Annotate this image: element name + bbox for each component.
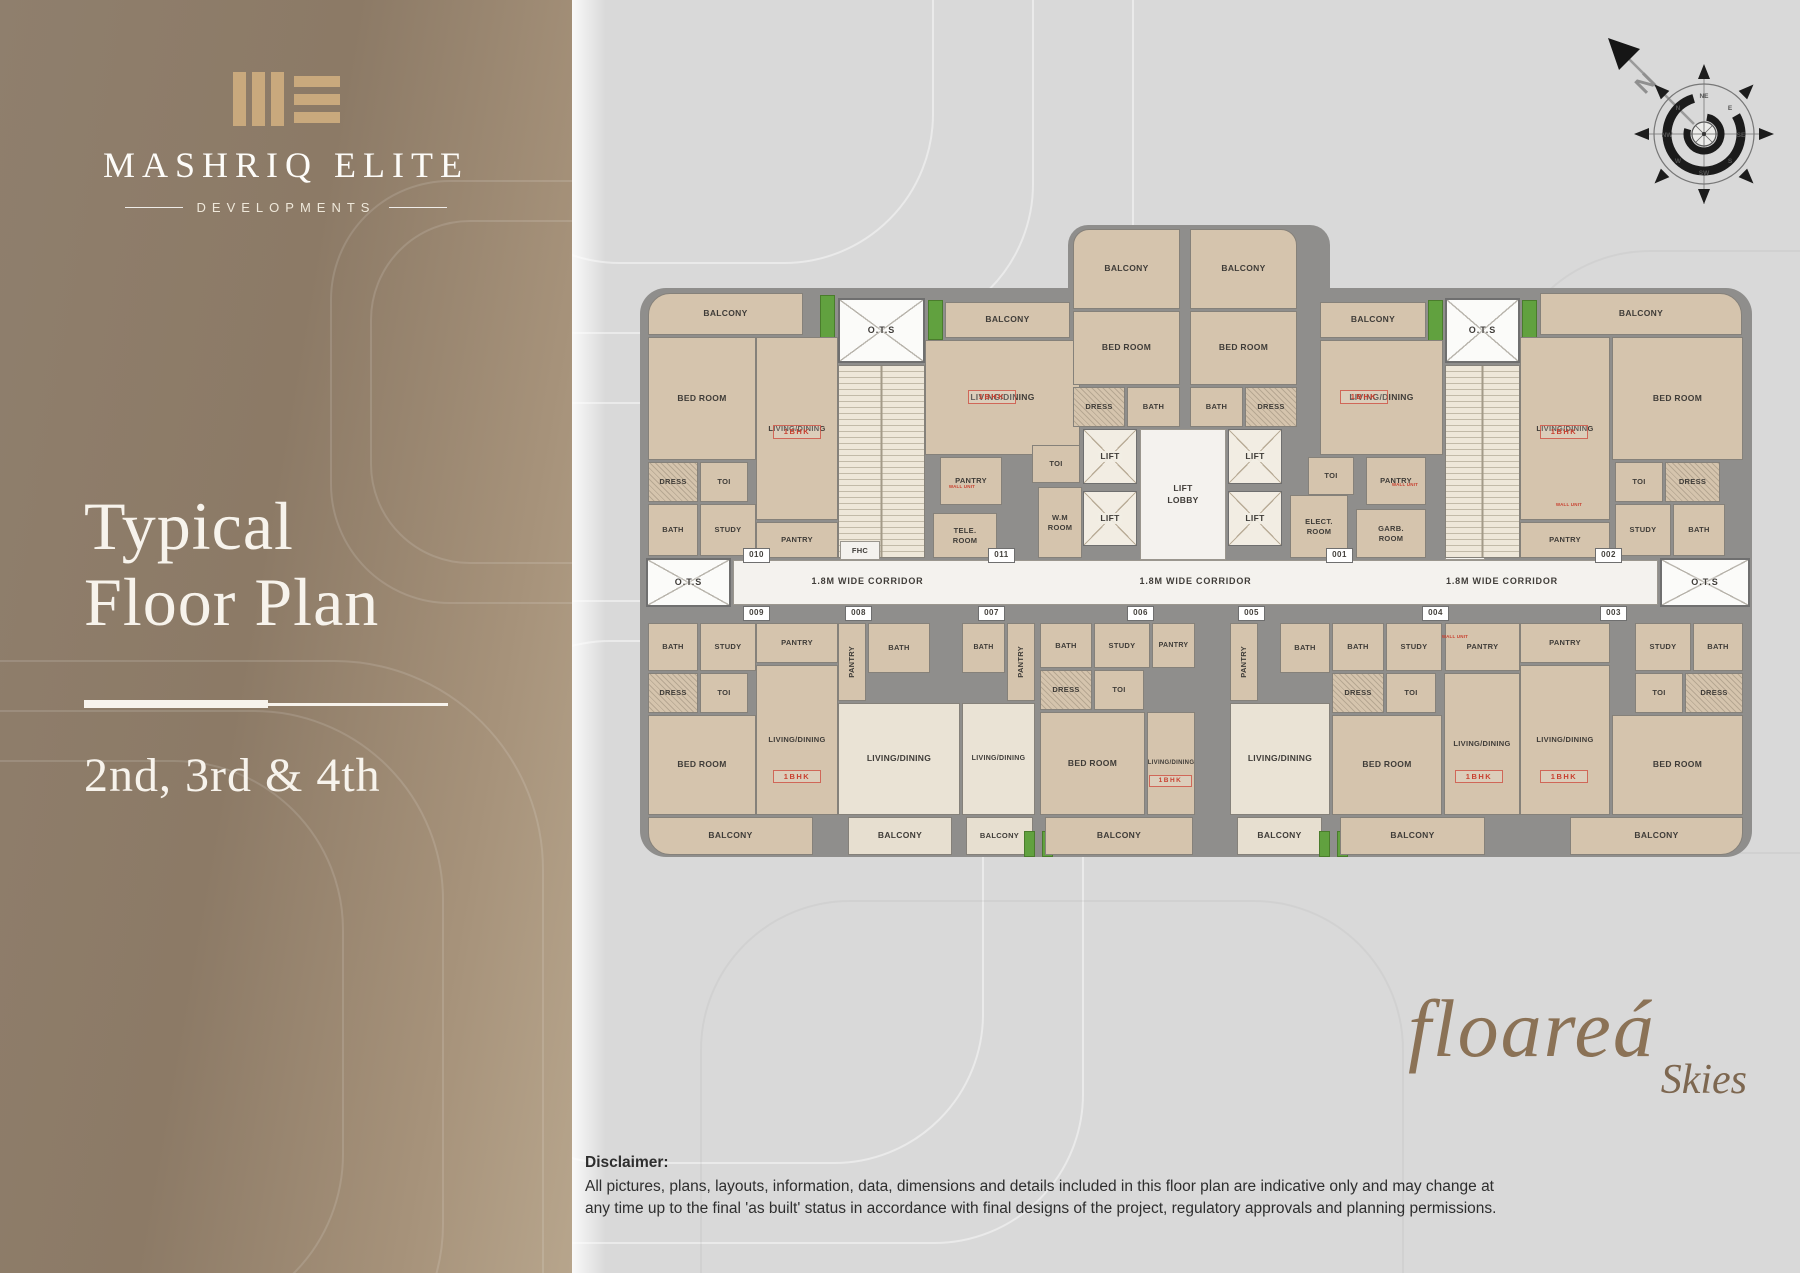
redtag-001: 1BHK — [1340, 390, 1388, 404]
logo-horizontal-bars — [294, 76, 340, 123]
dress-core-right: DRESS — [1245, 387, 1297, 427]
wall-unit-tag-2: WALL UNIT — [1388, 481, 1422, 489]
sidebar-arc — [0, 760, 344, 1273]
compass-north-label: N — [1630, 68, 1661, 99]
unit-tag-009: 009 — [743, 606, 770, 621]
sidebar-edge-highlight — [572, 0, 606, 1273]
bath-002: BATH — [1673, 504, 1725, 556]
ots-top-right: O.T.S — [1445, 298, 1520, 363]
corridor-label-center: 1.8M WIDE CORRIDOR — [1108, 574, 1283, 590]
corridor-label-right: 1.8M WIDE CORRIDOR — [1412, 574, 1592, 590]
redtag-009: 1BHK — [773, 770, 821, 783]
bath-009: BATH — [648, 623, 698, 671]
pantry-003: PANTRY — [1520, 623, 1610, 663]
balcony-009: BALCONY — [648, 817, 813, 855]
unit-tag-011: 011 — [988, 548, 1015, 563]
bedroom-004: BED ROOM — [1332, 715, 1442, 815]
ots-corridor-left: O.T.S — [646, 558, 731, 607]
bath-core-right: BATH — [1190, 387, 1243, 427]
wall-unit-tag-4: WALL UNIT — [1552, 501, 1586, 509]
dress-003: DRESS — [1685, 673, 1743, 713]
logo-vertical-bars — [233, 72, 284, 126]
planter-7 — [1319, 831, 1330, 857]
pantry-005: PANTRY — [1230, 623, 1258, 701]
toi-002: TOI — [1615, 462, 1663, 502]
toi-003: TOI — [1635, 673, 1683, 713]
ots-top-left: O.T.S — [838, 298, 925, 363]
lift-1: LIFT — [1083, 429, 1137, 484]
redtag-006: 1BHK — [1149, 775, 1192, 787]
dress-004: DRESS — [1332, 673, 1384, 713]
brand-block: MASHRIQ ELITE DEVELOPMENTS — [0, 72, 572, 215]
unit-tag-008: 008 — [845, 606, 872, 621]
title-divider — [84, 700, 448, 708]
dress-009: DRESS — [648, 673, 698, 713]
pantry-006: PANTRY — [1152, 623, 1195, 668]
toi-009: TOI — [700, 673, 748, 713]
brand-name: MASHRIQ ELITE — [0, 144, 572, 186]
redtag-002: 1BHK — [1540, 425, 1588, 439]
toi-006: TOI — [1094, 670, 1144, 710]
balcony-007: BALCONY — [966, 817, 1033, 855]
pantry-011: PANTRY — [940, 457, 1002, 505]
balcony-001: BALCONY — [1320, 302, 1426, 338]
redtag-004: 1BHK — [1455, 770, 1503, 783]
balcony-003: BALCONY — [1570, 817, 1743, 855]
bath-core-left: BATH — [1127, 387, 1180, 427]
bath-005: BATH — [1280, 623, 1330, 673]
unit-tag-006: 006 — [1127, 606, 1154, 621]
wall-unit-tag-1: WALL UNIT — [945, 483, 979, 491]
wall-unit-tag-3: WALL UNIT — [1438, 633, 1472, 641]
lift-3: LIFT — [1228, 429, 1282, 484]
living-008: LIVING/DINING — [838, 703, 960, 815]
bedroom-core-left: BED ROOM — [1073, 311, 1180, 385]
floor-plan: O.T.SO.T.S1.8M WIDE CORRIDOR1.8M WIDE CO… — [640, 225, 1752, 857]
bedroom-002: BED ROOM — [1612, 337, 1743, 460]
unit-tag-007: 007 — [978, 606, 1005, 621]
balcony-core-right: BALCONY — [1190, 229, 1297, 309]
unit-tag-004: 004 — [1422, 606, 1449, 621]
bedroom-006: BED ROOM — [1040, 712, 1145, 815]
planter-2 — [928, 300, 943, 340]
balcony-006: BALCONY — [1045, 817, 1193, 855]
garb-room: GARB. ROOM — [1356, 509, 1426, 558]
project-logo: floareá Skies — [1408, 988, 1753, 1104]
lift-lobby: LIFT LOBBY — [1140, 429, 1226, 560]
study-002: STUDY — [1615, 504, 1671, 556]
balcony-002: BALCONY — [1540, 293, 1742, 335]
mashriq-logo-icon — [0, 72, 572, 126]
dress-core-left: DRESS — [1073, 387, 1125, 427]
balcony-010: BALCONY — [648, 293, 803, 335]
compass-point-label: E — [1728, 105, 1733, 112]
tagline-rule-left — [125, 207, 183, 208]
study-009: STUDY — [700, 623, 756, 671]
unit-tag-010: 010 — [743, 548, 770, 563]
divider-thin-segment — [268, 703, 448, 706]
disclaimer: Disclaimer: All pictures, plans, layouts… — [585, 1152, 1520, 1220]
sidebar: MASHRIQ ELITE DEVELOPMENTS Typical Floor… — [0, 0, 572, 1273]
living-005: LIVING/DINING — [1230, 703, 1330, 815]
bedroom-010: BED ROOM — [648, 337, 756, 460]
balcony-core-left: BALCONY — [1073, 229, 1180, 309]
compass-point-label: NW — [1662, 132, 1674, 139]
pantry-007: PANTRY — [1007, 623, 1035, 701]
pantry-004: PANTRY — [1445, 623, 1520, 671]
balcony-004: BALCONY — [1340, 817, 1485, 855]
bath-007: BATH — [962, 623, 1005, 673]
ots-corridor-right: O.T.S — [1660, 558, 1750, 607]
planter-4 — [1522, 300, 1537, 342]
planter-5 — [1024, 831, 1035, 857]
brand-tagline-row: DEVELOPMENTS — [0, 200, 572, 215]
pantry-009: PANTRY — [756, 623, 838, 663]
pantry-008: PANTRY — [838, 623, 866, 701]
disclaimer-text: All pictures, plans, layouts, informatio… — [585, 1176, 1520, 1220]
lift-2: LIFT — [1083, 491, 1137, 546]
compass-point-label: W — [1675, 158, 1682, 165]
redtag-011: 1BHK — [968, 390, 1016, 404]
compass-point-label: SE — [1737, 132, 1746, 139]
compass-point-label: N — [1676, 105, 1681, 112]
unit-tag-002: 002 — [1595, 548, 1622, 563]
bath-004: BATH — [1332, 623, 1384, 671]
wm-room: W.M ROOM — [1038, 487, 1082, 558]
unit-tag-003: 003 — [1600, 606, 1627, 621]
dress-002: DRESS — [1665, 462, 1720, 502]
planter-3 — [1428, 300, 1443, 342]
bath-003: BATH — [1693, 623, 1743, 671]
compass-point-label: SW — [1699, 170, 1710, 177]
bath-010: BATH — [648, 504, 698, 556]
balcony-011: BALCONY — [945, 302, 1070, 338]
compass-point-label: NE — [1699, 93, 1709, 100]
bedroom-009: BED ROOM — [648, 715, 756, 815]
tagline-rule-right — [389, 207, 447, 208]
compass-icon: N NE E SE S SW W NW N — [1596, 26, 1782, 212]
living-004: LIVING/DINING — [1444, 673, 1520, 815]
page-subtitle: 2nd, 3rd & 4th — [84, 748, 381, 803]
stair-right — [1445, 365, 1520, 558]
lift-4: LIFT — [1228, 491, 1282, 546]
stair-left — [838, 365, 925, 558]
redtag-010: 1BHK — [773, 425, 821, 439]
page: MASHRIQ ELITE DEVELOPMENTS Typical Floor… — [0, 0, 1800, 1273]
unit-tag-001: 001 — [1326, 548, 1353, 563]
bedroom-core-right: BED ROOM — [1190, 311, 1297, 385]
redtag-003: 1BHK — [1540, 770, 1588, 783]
study-004: STUDY — [1386, 623, 1442, 671]
living-007: LIVING/DINING — [962, 703, 1035, 815]
bath-008: BATH — [868, 623, 930, 673]
divider-thick-segment — [84, 700, 268, 708]
toi-011: TOI — [1032, 445, 1080, 483]
disclaimer-heading: Disclaimer: — [585, 1152, 1520, 1174]
toi-010: TOI — [700, 462, 748, 502]
corridor-label-left: 1.8M WIDE CORRIDOR — [780, 574, 955, 590]
study-006: STUDY — [1094, 623, 1150, 668]
toi-004: TOI — [1386, 673, 1436, 713]
study-003: STUDY — [1635, 623, 1691, 671]
living-006: LIVING/DINING — [1147, 712, 1195, 815]
fhc-left: FHC — [840, 541, 880, 560]
dress-006: DRESS — [1040, 670, 1092, 710]
balcony-005: BALCONY — [1237, 817, 1322, 855]
dress-010: DRESS — [648, 462, 698, 502]
brand-tagline: DEVELOPMENTS — [197, 200, 376, 215]
balcony-008: BALCONY — [848, 817, 952, 855]
living-003: LIVING/DINING — [1520, 665, 1610, 815]
unit-tag-005: 005 — [1238, 606, 1265, 621]
sidebar-arc — [370, 220, 572, 564]
toi-001: TOI — [1308, 457, 1354, 495]
compass-point-label: S — [1728, 158, 1733, 165]
bedroom-003: BED ROOM — [1612, 715, 1743, 815]
bath-006: BATH — [1040, 623, 1092, 668]
living-009: LIVING/DINING — [756, 665, 838, 815]
page-title: Typical Floor Plan — [84, 488, 379, 640]
